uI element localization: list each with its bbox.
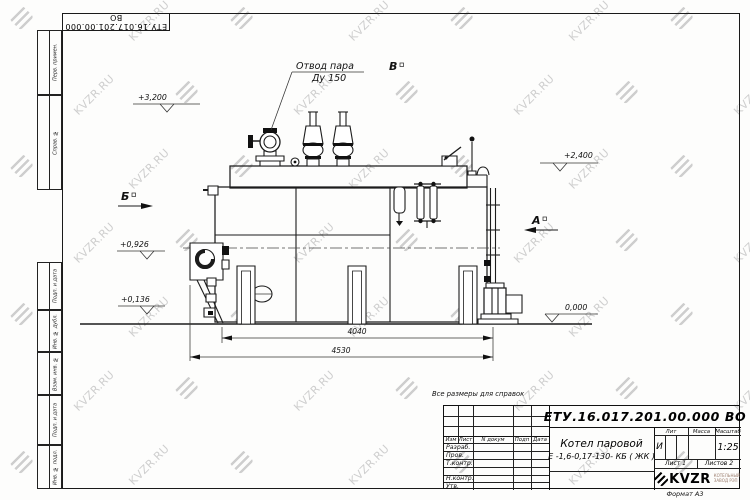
margin-box-perv-primen: Перв. примен.	[37, 30, 62, 95]
margin-box-label: Инв. № дубл.	[50, 311, 61, 351]
product-name-line2: Е -1,6-0,17-130- КБ ( ЖК )	[548, 452, 655, 461]
sheets-cell: Листов 2	[697, 459, 741, 468]
doc-number: ЕТУ.16.017.201.00.000 ВО	[544, 409, 746, 424]
margin-box-divider	[38, 263, 50, 309]
role-tkontr: Т.контр.	[444, 459, 473, 467]
scale-value: 1:25	[715, 435, 741, 459]
doc-number-cell: ЕТУ.16.017.201.00.000 ВО	[549, 406, 741, 428]
role-utv: Утв.	[444, 482, 473, 490]
col-header-data: Дата	[531, 436, 549, 443]
grid-line	[549, 471, 654, 472]
top-left-doc-number: ЕТУ.16.017.201.00.000 ВО	[63, 14, 169, 30]
sheet-cell: Лист 1	[654, 459, 697, 468]
grid-line	[665, 435, 666, 459]
col-header-izm: Изм	[444, 436, 458, 443]
margin-box-sprav-n: Справ. №	[37, 95, 62, 190]
logo-subtitle-line2: ЗАВОД РЭП	[714, 479, 740, 484]
top-left-doc-number-box: ЕТУ.16.017.201.00.000 ВО	[62, 13, 170, 31]
role-prov: Пров.	[444, 451, 473, 459]
role-nkontr: Н.контр.	[444, 475, 473, 482]
logo-text: KVZR	[669, 472, 711, 487]
lit-value: И	[654, 435, 665, 459]
margin-box-divider	[38, 446, 50, 488]
product-name-line1: Котел паровой	[560, 438, 642, 450]
margin-box-divider	[38, 31, 50, 94]
margin-box-inv-dubl: Инв. № дубл.	[37, 310, 62, 352]
margin-box-divider	[38, 353, 50, 394]
title-block: Изм Лист N докум Подп Дата Разраб. Пров.…	[443, 405, 740, 489]
margin-box-vzam-inv: Взам. инв. №	[37, 352, 62, 395]
role-empty	[444, 467, 473, 475]
margin-box-podp-data-1: Подп. и дата	[37, 262, 62, 310]
product-name-cell: Котел паровой Е -1,6-0,17-130- КБ ( ЖК )	[549, 428, 654, 471]
grid-line	[513, 406, 514, 490]
margin-box-inv-podl: Инв. № подл.	[37, 445, 62, 489]
grid-line	[444, 426, 549, 427]
margin-box-label: Справ. №	[50, 96, 61, 189]
margin-box-label: Подп. и дата	[50, 263, 61, 309]
logo-cell: KVZR КОТЕЛЬНЫЙ ЗАВОД РЭП	[656, 469, 740, 489]
format-label: Формат А3	[630, 490, 740, 498]
col-header-lit: Лит	[654, 428, 688, 435]
grid-line	[531, 406, 532, 490]
col-header-masshtab: Масштаб	[715, 428, 741, 435]
col-header-list: Лист	[458, 436, 473, 443]
kvzr-coil-logo-icon	[653, 471, 669, 487]
margin-box-podp-data-2: Подп. и дата	[37, 395, 62, 445]
col-header-ndokum: N докум	[473, 436, 513, 443]
grid-line	[444, 416, 549, 417]
margin-box-divider	[38, 311, 50, 351]
reference-note: Все размеры для справок	[432, 390, 524, 398]
margin-box-label: Инв. № подл.	[50, 446, 61, 488]
margin-box-label: Подп. и дата	[50, 396, 61, 444]
margin-box-divider	[38, 96, 50, 189]
role-razrab: Разраб.	[444, 443, 473, 451]
margin-box-label: Перв. примен.	[50, 31, 61, 94]
margin-box-label: Взам. инв. №	[50, 353, 61, 394]
logo-subtitle: КОТЕЛЬНЫЙ ЗАВОД РЭП	[714, 474, 740, 483]
col-header-massa: Масса	[688, 428, 715, 435]
drawing-sheet: KVZR.RUKVZR.RUKVZR.RUKVZR.RUKVZR.RUKVZR.…	[0, 0, 750, 500]
col-header-podp: Подп	[513, 436, 531, 443]
margin-box-divider	[38, 396, 50, 444]
grid-line	[676, 435, 677, 459]
